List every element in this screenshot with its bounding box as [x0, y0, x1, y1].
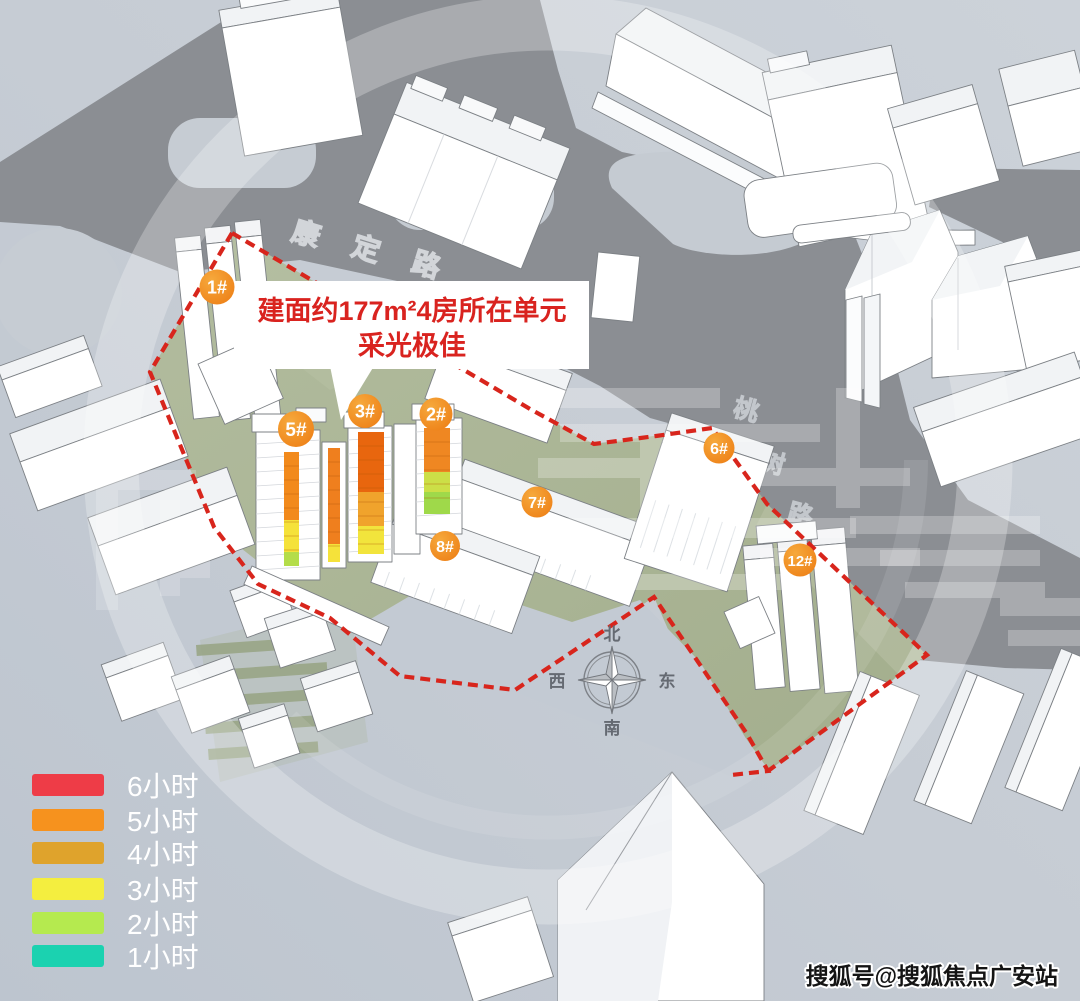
svg-text:5小时: 5小时: [127, 806, 199, 837]
svg-text:12#: 12#: [787, 553, 813, 570]
svg-text:1#: 1#: [207, 278, 227, 298]
svg-text:2小时: 2小时: [127, 909, 199, 940]
svg-text:6小时: 6小时: [127, 771, 199, 802]
svg-text:6#: 6#: [710, 441, 728, 458]
svg-text:东: 东: [659, 671, 676, 691]
svg-text:搜狐号@搜狐焦点广安站: 搜狐号@搜狐焦点广安站: [806, 963, 1058, 989]
svg-text:3小时: 3小时: [127, 875, 199, 906]
svg-text:南: 南: [604, 718, 621, 738]
svg-text:8#: 8#: [436, 539, 454, 556]
svg-text:7#: 7#: [528, 495, 546, 512]
svg-text:1小时: 1小时: [127, 942, 199, 973]
svg-text:3#: 3#: [355, 402, 375, 422]
svg-text:采光极佳: 采光极佳: [358, 331, 466, 361]
svg-text:4小时: 4小时: [127, 839, 199, 870]
svg-text:西: 西: [549, 672, 566, 691]
svg-text:5#: 5#: [285, 420, 307, 441]
svg-text:北: 北: [604, 625, 621, 644]
svg-text:2#: 2#: [426, 405, 446, 425]
svg-text:建面约177m²4房所在单元: 建面约177m²4房所在单元: [257, 296, 566, 326]
